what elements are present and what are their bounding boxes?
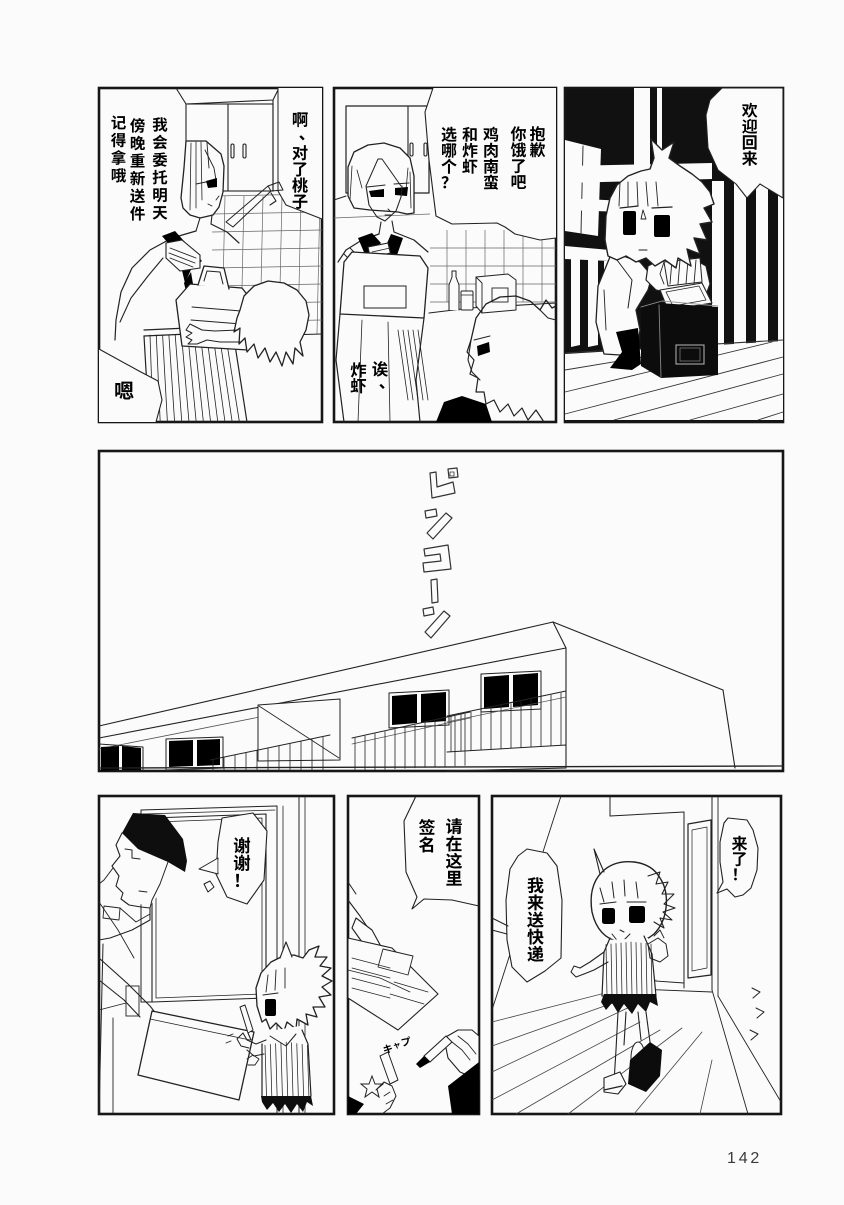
svg-text:142: 142 [727, 1150, 762, 1167]
